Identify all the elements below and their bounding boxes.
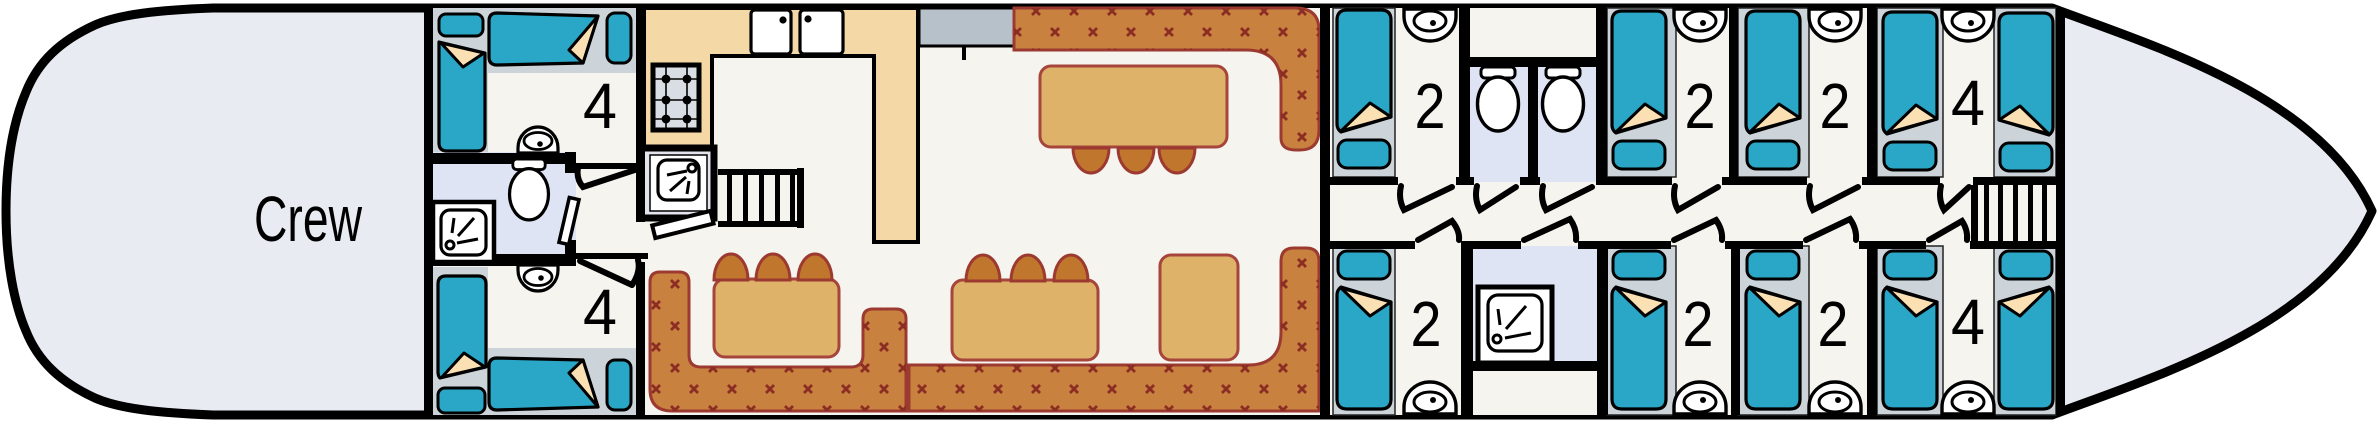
svg-text:2: 2: [1685, 70, 1716, 142]
svg-text:2: 2: [1820, 70, 1851, 142]
svg-text:2: 2: [1415, 70, 1446, 142]
svg-text:4: 4: [583, 276, 617, 348]
svg-text:4: 4: [1951, 67, 1985, 139]
svg-text:4: 4: [583, 70, 617, 142]
svg-text:Crew: Crew: [254, 183, 363, 255]
svg-text:2: 2: [1411, 288, 1442, 360]
svg-text:4: 4: [1951, 286, 1985, 358]
svg-text:2: 2: [1683, 288, 1714, 360]
svg-text:2: 2: [1818, 288, 1849, 360]
